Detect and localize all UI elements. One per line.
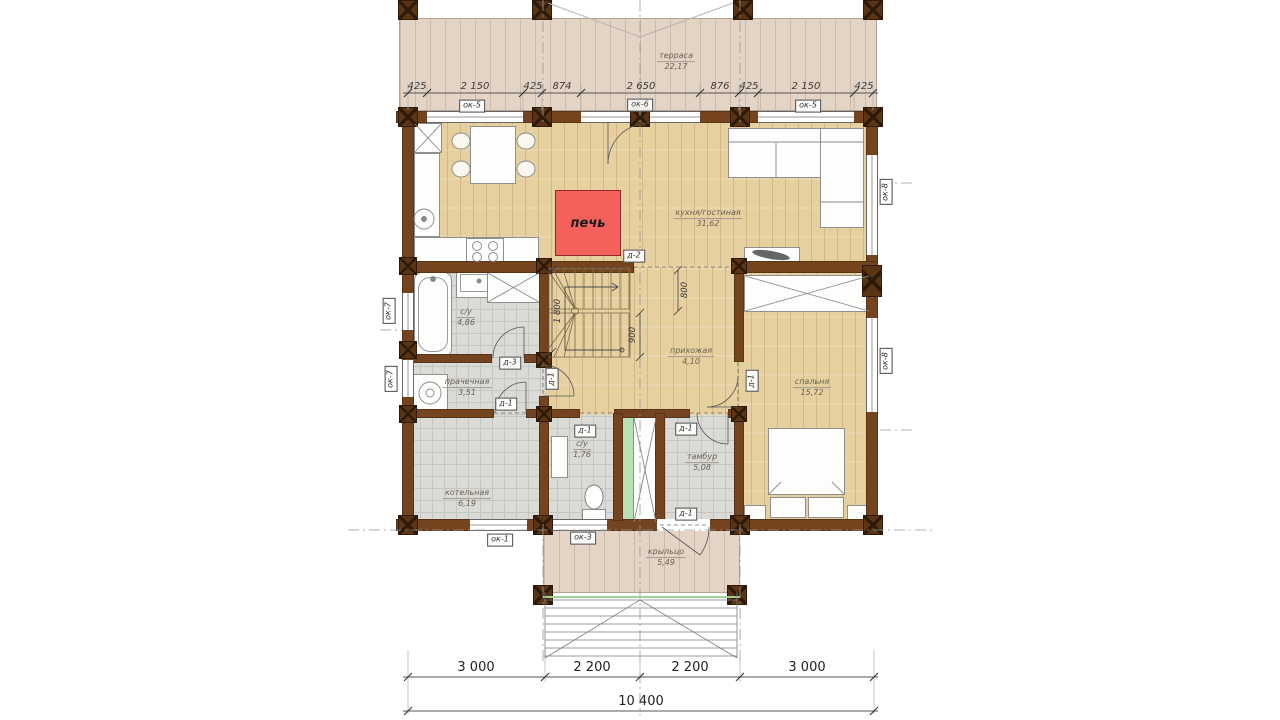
shaft-duct-box [633, 417, 657, 523]
terrace-deck [399, 18, 877, 111]
wall-vert-right-b [734, 406, 744, 531]
post [398, 515, 418, 535]
post [863, 107, 883, 127]
window-left-bath [402, 293, 414, 330]
post [399, 405, 417, 423]
bed-pillow-left [770, 497, 806, 518]
room-label-bedroom: спальня 15,72 [793, 377, 831, 399]
post [533, 515, 553, 535]
porch-steps [543, 592, 740, 658]
post [863, 515, 883, 535]
wall-tambour-top-a [614, 409, 690, 418]
door-tag-bath: д-3 [499, 357, 521, 370]
dim-bottom-1: 2 200 [573, 660, 610, 675]
window-left-laundry [402, 360, 414, 397]
window-tag-left-bath: ок-7 [383, 298, 396, 324]
kitchen-appliance-box [414, 123, 442, 153]
window-right-bedroom [866, 318, 878, 412]
post [727, 585, 747, 605]
stove-box: печь [555, 190, 621, 256]
window-tag-top-left: ок-5 [459, 100, 485, 113]
post [536, 258, 552, 274]
window-tag-right-bedroom: ок-8 [880, 348, 893, 374]
hallway-floor [543, 267, 740, 415]
wall-mid-left [402, 261, 634, 273]
dim-stair-flight: 1 800 [553, 299, 563, 323]
bed [768, 428, 845, 495]
dim-bottom-2: 2 200 [671, 660, 708, 675]
dim-top-6: 425 [739, 81, 758, 92]
dim-top-3: 874 [552, 81, 571, 92]
door-tag-laundry-boiler: д-1 [495, 398, 517, 411]
room-label-terrace: терраса 22,17 [657, 51, 695, 73]
window-bottom-boiler [470, 519, 527, 531]
window-top-right [758, 111, 854, 123]
shower-box [487, 272, 540, 303]
room-label-kitchen-living: кухня/гостиная 31,62 [673, 208, 742, 230]
post [862, 265, 882, 297]
post [532, 0, 552, 20]
room-label-laundry: прачечная 3,51 [443, 377, 492, 399]
dim-top-0: 425 [407, 81, 426, 92]
wall-vert-left-a [539, 261, 549, 362]
sofa-chaise [820, 128, 864, 228]
window-tag-top-right: ок-5 [795, 100, 821, 113]
post [533, 585, 553, 605]
dim-top-2: 425 [523, 81, 542, 92]
post [731, 406, 747, 422]
post [532, 107, 552, 127]
room-label-wc: с/у 1,76 [573, 439, 591, 461]
dim-top-4: 2 650 [627, 81, 656, 92]
floor-plan: печь [0, 0, 1280, 720]
post [536, 352, 552, 368]
dim-top-7: 2 150 [792, 81, 821, 92]
window-top-left [427, 111, 523, 123]
post [398, 107, 418, 127]
window-right-living [866, 155, 878, 255]
room-label-bathroom: с/у 4,86 [457, 307, 475, 329]
post [733, 0, 753, 20]
room-label-hallway: прихожая 4,10 [668, 346, 714, 368]
window-tag-top-center: ок-6 [627, 99, 653, 112]
post [863, 0, 883, 20]
door-tag-bedroom: д-1 [746, 370, 759, 392]
dim-top-1: 2 150 [461, 81, 490, 92]
door-gap-exit [657, 519, 710, 531]
wall-vert-right-a [734, 261, 744, 362]
dining-table [470, 126, 516, 184]
dim-stair-opening: 800 [680, 282, 690, 298]
door-tag-laundry-entry: д-1 [546, 368, 559, 390]
room-label-tambour: тамбур 5,08 [685, 452, 719, 474]
dim-top-8: 425 [854, 81, 873, 92]
post [399, 341, 417, 359]
window-tag-left-laundry: ок-7 [385, 366, 398, 392]
kitchen-counter-left [414, 153, 440, 237]
room-label-porch: крыльцо 5,49 [646, 547, 686, 569]
wardrobe [744, 275, 870, 312]
window-tag-right-living: ок-8 [880, 179, 893, 205]
stove-label: печь [571, 216, 606, 231]
post [536, 406, 552, 422]
wc-door-leaf [551, 436, 568, 478]
dim-bottom-3: 3 000 [788, 660, 825, 675]
dim-stair-run: 900 [628, 327, 638, 343]
door-tag-tambour-exit: д-1 [675, 508, 697, 521]
dim-bottom-0: 3 000 [457, 660, 494, 675]
post [730, 515, 750, 535]
post [399, 257, 417, 275]
window-tag-bottom-wc: ок-3 [570, 532, 596, 545]
wall-shaft-left [613, 413, 623, 521]
shaft-green-strip [623, 417, 633, 523]
room-label-boiler: котельная 6,19 [443, 488, 491, 510]
bathtub-inner [418, 277, 448, 352]
dim-top-5: 876 [710, 81, 729, 92]
window-tag-bottom-boiler: ок-1 [487, 534, 513, 547]
wall-shaft-right [655, 413, 665, 521]
door-tag-tambour-top: д-1 [675, 423, 697, 436]
post [398, 0, 418, 20]
bed-pillow-right [808, 497, 844, 518]
wall-bottom [396, 519, 878, 531]
wall-mid-right [734, 261, 878, 273]
door-tag-wc: д-1 [574, 425, 596, 438]
post [730, 107, 750, 127]
post [731, 258, 747, 274]
dim-total: 10 400 [618, 694, 664, 709]
door-tag-kitchen: д-2 [623, 250, 645, 263]
